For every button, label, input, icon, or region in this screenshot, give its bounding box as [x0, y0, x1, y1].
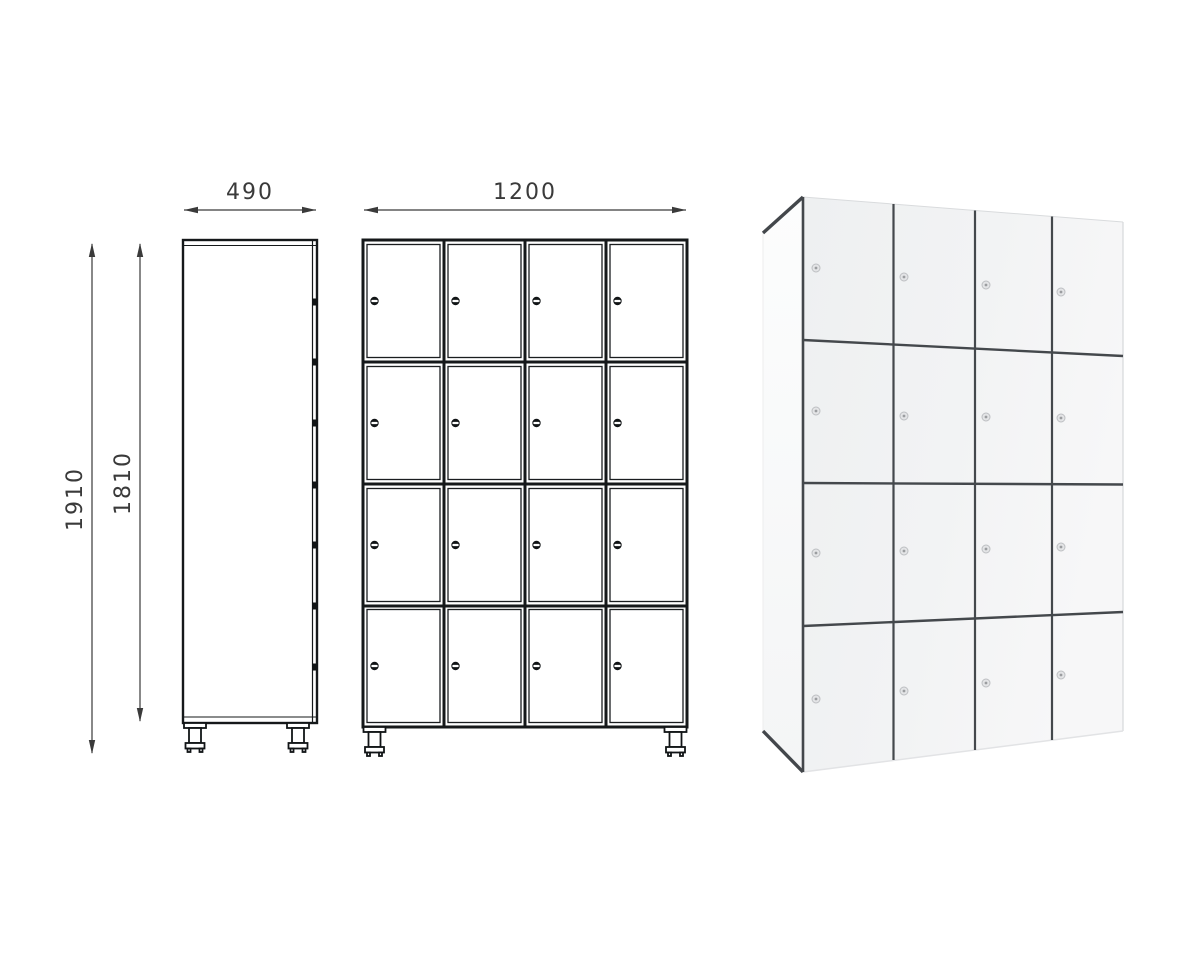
lock-icon: [812, 407, 820, 415]
lock-icon: [900, 687, 908, 695]
arrow-right: [302, 207, 316, 213]
adjustable-foot: [287, 723, 309, 752]
adjustable-foot: [364, 727, 386, 756]
lock-icon: [812, 264, 820, 272]
render-side-panel: [763, 197, 803, 772]
lock-icon: [812, 549, 820, 557]
dimension-height-total-1910: 1910: [63, 243, 95, 754]
dimension-height-body-1810: 1810: [111, 243, 143, 722]
lock-icon: [812, 695, 820, 703]
arrow-left: [184, 207, 198, 213]
render-3d: [763, 197, 1123, 772]
lock-icon: [1057, 671, 1065, 679]
arrow-down: [137, 708, 143, 722]
front-view: [363, 240, 687, 756]
dimension-width-1200: 1200: [364, 180, 686, 213]
dim-height-body-label: 1810: [111, 451, 136, 515]
arrow-down: [89, 740, 95, 754]
dim-depth-label: 490: [226, 180, 274, 205]
arrow-up: [89, 243, 95, 257]
lock-icon: [900, 412, 908, 420]
lock-icon: [1057, 288, 1065, 296]
lock-icon: [982, 413, 990, 421]
lock-icon: [1057, 414, 1065, 422]
locker-technical-drawing-and-render: 490 1200 1910 1810: [0, 0, 1184, 968]
arrow-left: [364, 207, 378, 213]
lock-icon: [900, 273, 908, 281]
lock-icon: [900, 547, 908, 555]
adjustable-foot: [665, 727, 687, 756]
arrow-right: [672, 207, 686, 213]
dim-width-label: 1200: [493, 180, 557, 205]
arrow-up: [137, 243, 143, 257]
dim-height-total-label: 1910: [63, 467, 88, 531]
lock-icon: [982, 545, 990, 553]
lock-icon: [982, 679, 990, 687]
adjustable-foot: [184, 723, 206, 752]
side-view: [183, 240, 318, 752]
product-sheet: 490 1200 1910 1810: [0, 0, 1184, 968]
dimension-depth-490: 490: [184, 180, 316, 213]
lock-icon: [1057, 543, 1065, 551]
side-view-body: [183, 240, 317, 723]
lock-icon: [982, 281, 990, 289]
